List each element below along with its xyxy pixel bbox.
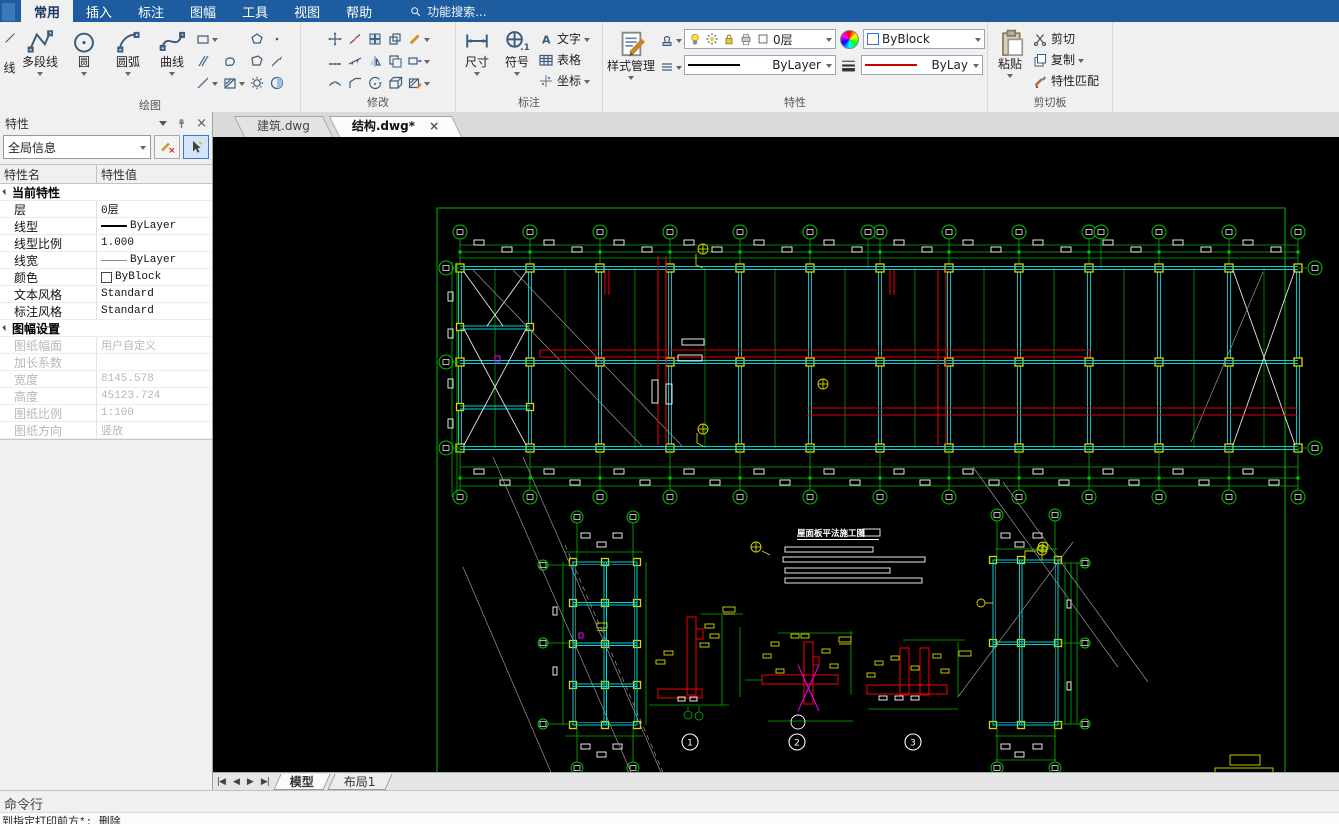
match-properties-icon [1032, 73, 1048, 89]
publish-button[interactable] [659, 31, 682, 49]
ribbon-tab-bar: 常用 插入 标注 图幅 工具 视图 帮助 功能搜索... [0, 0, 1339, 22]
group-sheet-settings[interactable]: 图幅设置 [0, 320, 212, 337]
svg-text:.1: .1 [520, 43, 530, 53]
tab-sheet[interactable]: 图幅 [177, 0, 229, 22]
dropdown-arrow-icon [81, 72, 87, 76]
ribbon: 线 多段线 圆 圆弧 曲线 [0, 22, 1339, 113]
paste-button[interactable]: 粘贴 [990, 25, 1030, 93]
copy-button[interactable]: 复制 [1032, 49, 1099, 70]
modify-tool-grid [327, 28, 430, 93]
color-swatch [101, 272, 112, 283]
text-icon: A [538, 31, 554, 47]
panel-draw: 线 多段线 圆 圆弧 曲线 [0, 22, 301, 112]
gradient-button[interactable] [269, 72, 285, 93]
measure-icon [347, 53, 363, 69]
break-button[interactable] [347, 28, 363, 49]
color-select[interactable]: ByBlock [863, 29, 985, 49]
function-search[interactable]: 功能搜索... [409, 0, 486, 22]
palette-title-bar: 特性 × [0, 112, 212, 134]
command-line-panel[interactable]: 命令行 [0, 790, 1339, 812]
dropdown-arrow-icon [973, 64, 979, 68]
double-line-button[interactable] [195, 50, 218, 71]
point-icon [269, 31, 285, 47]
pin-icon[interactable] [175, 117, 188, 130]
property-table-header: 特性名 特性值 [0, 164, 212, 184]
dropdown-arrow-icon [474, 72, 480, 76]
panel-clipboard: 粘贴 剪切 复制 特性匹配 剪切板 [988, 22, 1113, 112]
panel-label-properties: 特性 [603, 96, 987, 112]
command-echo-strip: 到指定打印前方*: 删除 [0, 812, 1339, 824]
style-manager-icon [616, 28, 646, 58]
array-button[interactable] [367, 28, 383, 49]
row-lengthen-factor[interactable]: 加长系数 [0, 354, 212, 371]
wipeout-button[interactable] [249, 50, 265, 71]
lines-menu-icon [659, 59, 675, 75]
model-layout-bar: |◀ ◀ ▶ ▶| 模型 布局1 [213, 772, 1339, 790]
dropdown-arrow-icon [975, 38, 981, 42]
divide-icon [327, 53, 343, 69]
clear-override-button[interactable]: × [154, 135, 180, 159]
list-button[interactable] [659, 58, 682, 76]
row-dim-style[interactable]: 标注风格 Standard [0, 303, 212, 320]
wipeout-icon [249, 53, 265, 69]
leader-button[interactable] [269, 50, 285, 71]
region-button[interactable] [222, 50, 245, 71]
line-button[interactable] [195, 72, 218, 93]
color-swatch [867, 33, 879, 45]
app-menu-button[interactable] [2, 3, 15, 21]
stamp-icon [659, 32, 675, 48]
chamfer-icon [347, 75, 363, 91]
dropdown-arrow-icon [1007, 74, 1013, 78]
mirror-button[interactable] [367, 50, 383, 71]
hatch-button[interactable] [222, 72, 245, 93]
rectangle-button[interactable] [195, 28, 218, 49]
text-button[interactable]: A文字 [538, 28, 590, 49]
detail-bubble-1: 1 [687, 739, 693, 749]
polyline-button[interactable]: 多段线 [19, 25, 61, 93]
row-text-style[interactable]: 文本风格 Standard [0, 286, 212, 303]
lineweight-sample [865, 64, 917, 66]
dimension-icon [464, 28, 490, 54]
color-value: ByBlock [882, 32, 972, 46]
svg-text:A: A [542, 33, 551, 46]
coordinate-button[interactable]: 坐标 [538, 70, 590, 91]
circle-button[interactable]: 圆 [63, 25, 105, 93]
erase-icon [407, 31, 423, 47]
scissors-icon [1032, 31, 1048, 47]
command-line-label: 命令行 [4, 798, 43, 813]
revcloud-button[interactable] [327, 72, 343, 93]
ellipse-icon [222, 31, 238, 47]
ellipse-button[interactable] [222, 28, 245, 49]
panel-label-clipboard: 剪切板 [988, 96, 1112, 112]
linetype-select[interactable]: ByLayer [684, 55, 836, 75]
row-sheet-size[interactable]: 图纸幅面 用户自定义 [0, 337, 212, 354]
break-icon [347, 31, 363, 47]
palette-title: 特性 [5, 115, 29, 132]
double-line-icon [195, 53, 211, 69]
detail-section-3: 3 [867, 640, 971, 750]
collapse-arrow-icon [2, 325, 8, 331]
detail-section-1: 1 [649, 607, 743, 750]
dropdown-arrow-icon [140, 146, 146, 150]
row-linetype[interactable]: 线型 ByLayer [0, 218, 212, 235]
model-tab[interactable]: 模型 [277, 774, 327, 790]
symbol-button[interactable]: .1 符号 [498, 25, 536, 93]
doc-tab-structure[interactable]: 结构.dwg* × [334, 116, 457, 137]
dropdown-arrow-icon [514, 72, 520, 76]
stretch-icon [407, 53, 423, 69]
lineweight-icon[interactable] [840, 57, 857, 74]
rotate-icon [367, 75, 383, 91]
document-tab-bar: 建筑.dwg 结构.dwg* × [213, 112, 1339, 137]
block-tools-button[interactable] [249, 72, 265, 93]
lower-left-detail [463, 457, 665, 772]
color-wheel-icon[interactable] [840, 30, 859, 49]
match-properties-button[interactable]: 特性匹配 [1032, 70, 1099, 91]
rotate-button[interactable] [367, 72, 383, 93]
row-layer[interactable]: 层 0层 [0, 201, 212, 218]
detail-section-2: 2 [745, 631, 853, 750]
symbol-icon: .1 [504, 28, 530, 54]
command-echo-text: 到指定打印前方*: 删除 [2, 813, 1339, 824]
linetype-value: ByLayer [743, 58, 823, 72]
panel-properties: 样式管理 0层 [603, 22, 988, 112]
linetype-sample [688, 64, 740, 66]
last-tab-button[interactable]: ▶| [257, 777, 273, 787]
stretch-button[interactable] [407, 50, 430, 71]
hatch-icon [222, 75, 238, 91]
dropdown-arrow-icon [37, 72, 43, 76]
point-button[interactable] [269, 28, 285, 49]
generated-grid [439, 225, 1322, 772]
tab-insert[interactable]: 插入 [73, 0, 125, 22]
table-button[interactable]: 表格 [538, 49, 590, 70]
prev-tab-button[interactable]: ◀ [229, 777, 243, 787]
tab-help[interactable]: 帮助 [333, 0, 385, 22]
dropdown-arrow-icon [826, 64, 832, 68]
panel-label-draw: 绘图 [0, 99, 300, 113]
dropdown-arrow-icon [826, 38, 832, 42]
array-icon [367, 31, 383, 47]
subtract-icon [387, 53, 403, 69]
lineweight-select[interactable]: ByLay [861, 55, 983, 75]
row-sheet-orientation[interactable]: 图纸方向 竖放 [0, 422, 212, 439]
move-button[interactable] [327, 28, 343, 49]
panel-label-modify: 修改 [301, 96, 455, 112]
arc-button[interactable]: 圆弧 [107, 25, 149, 93]
dropdown-arrow-icon [628, 76, 634, 80]
first-tab-button[interactable]: |◀ [213, 777, 229, 787]
partial-line-button[interactable]: 线 [2, 25, 17, 99]
line-icon [3, 31, 17, 45]
subtract-button[interactable] [387, 50, 403, 71]
close-icon[interactable]: × [196, 117, 207, 130]
sun-icon [705, 32, 719, 46]
lock-icon [722, 32, 736, 46]
row-height[interactable]: 高度 45123.724 [0, 388, 212, 405]
properties-palette: 特性 × 全局信息 × 特性名 特性值 当前特性 层 0层 线型 ByLayer… [0, 112, 213, 790]
cad-drawing[interactable]: 屋面板平法施工图 1 [213, 137, 1339, 772]
drawing-title-block: 屋面板平法施工图 [783, 528, 925, 583]
tab-annotate[interactable]: 标注 [125, 0, 177, 22]
group-current-properties[interactable]: 当前特性 [0, 184, 212, 201]
search-placeholder: 功能搜索... [427, 3, 486, 20]
panel-modify: 修改 [301, 22, 456, 112]
polygon-icon [249, 31, 265, 47]
dropdown-arrow-icon [169, 72, 175, 76]
solid-edit-icon [387, 75, 403, 91]
detail-bubble-3: 3 [910, 739, 916, 749]
layout1-tab[interactable]: 布局1 [331, 774, 389, 790]
linetype-sample [101, 225, 127, 227]
printer-icon [739, 32, 753, 46]
bulb-icon [688, 32, 702, 46]
pencil-x-icon: × [159, 139, 175, 155]
circle-icon [71, 28, 97, 54]
panel-dimension: 尺寸 .1 符号 A文字 表格 坐标 标注 [456, 22, 603, 112]
search-icon [409, 5, 422, 18]
region-icon [222, 53, 238, 69]
style-manager-button[interactable]: 样式管理 [605, 25, 657, 93]
draw-tool-grid [195, 28, 285, 93]
row-lineweight[interactable]: 线宽 ByLayer [0, 252, 212, 269]
row-sheet-scale[interactable]: 图纸比例 1:100 [0, 405, 212, 422]
solid-edit-button[interactable] [387, 72, 403, 93]
row-color[interactable]: 颜色 ByBlock [0, 269, 212, 286]
svg-text:×: × [168, 146, 175, 155]
mirror-icon [367, 53, 383, 69]
doc-tab-architecture[interactable]: 建筑.dwg [239, 116, 328, 137]
dimension-button[interactable]: 尺寸 [458, 25, 496, 93]
paste-icon [996, 28, 1024, 56]
measure-button[interactable] [347, 50, 363, 71]
row-linetype-scale[interactable]: 线型比例 1.000 [0, 235, 212, 252]
dropdown-arrow-icon [125, 72, 131, 76]
revision-cloud-icon [327, 75, 343, 91]
collapse-icon[interactable] [159, 121, 167, 126]
polygon-button[interactable] [249, 28, 265, 49]
offset-button[interactable] [387, 28, 403, 49]
layer-value: 0层 [773, 31, 823, 48]
close-icon[interactable]: × [429, 119, 439, 133]
polyline-icon [27, 28, 53, 54]
detail-bubble-2: 2 [794, 739, 800, 749]
lineweight-sample [101, 260, 127, 261]
property-table: 当前特性 层 0层 线型 ByLayer 线型比例 1.000 线宽 ByLay… [0, 184, 212, 440]
cut-button[interactable]: 剪切 [1032, 28, 1099, 49]
coordinate-icon [538, 73, 554, 89]
divide-button[interactable] [327, 50, 343, 71]
gear-icon [249, 75, 265, 91]
tab-tools[interactable]: 工具 [229, 0, 281, 22]
row-width[interactable]: 宽度 8145.578 [0, 371, 212, 388]
spline-icon [159, 28, 185, 54]
line-icon [195, 75, 211, 91]
quick-select-button[interactable] [183, 135, 209, 159]
spline-button[interactable]: 曲线 [151, 25, 193, 93]
gradient-icon [269, 75, 285, 91]
erase-button[interactable] [407, 28, 430, 49]
leader-icon [269, 53, 285, 69]
move-icon [327, 31, 343, 47]
drawing-title: 屋面板平法施工图 [797, 528, 865, 539]
sheet-corner-title-block [1215, 755, 1273, 772]
hatch-edit-icon [407, 75, 423, 91]
tab-view[interactable]: 视图 [281, 0, 333, 22]
lineweight-value: ByLay [920, 58, 970, 72]
panel-label-dimension: 标注 [456, 96, 602, 112]
layer-color-swatch [756, 32, 770, 46]
panel-spacer [1113, 22, 1339, 112]
layer-select[interactable]: 0层 [684, 29, 836, 49]
hatch-edit-button[interactable] [407, 72, 430, 93]
drawing-canvas[interactable]: 屋面板平法施工图 1 [213, 137, 1339, 772]
collapse-arrow-icon [2, 189, 8, 195]
arc-icon [115, 28, 141, 54]
structural-plan [460, 244, 1298, 560]
rectangle-icon [195, 31, 211, 47]
chamfer-button[interactable] [347, 72, 363, 93]
next-tab-button[interactable]: ▶ [243, 777, 257, 787]
selection-filter-select[interactable]: 全局信息 [3, 135, 151, 159]
offset-icon [387, 31, 403, 47]
tab-common[interactable]: 常用 [21, 0, 73, 22]
select-cursor-icon [188, 139, 204, 155]
table-icon [538, 52, 554, 68]
copy-icon [1032, 52, 1048, 68]
